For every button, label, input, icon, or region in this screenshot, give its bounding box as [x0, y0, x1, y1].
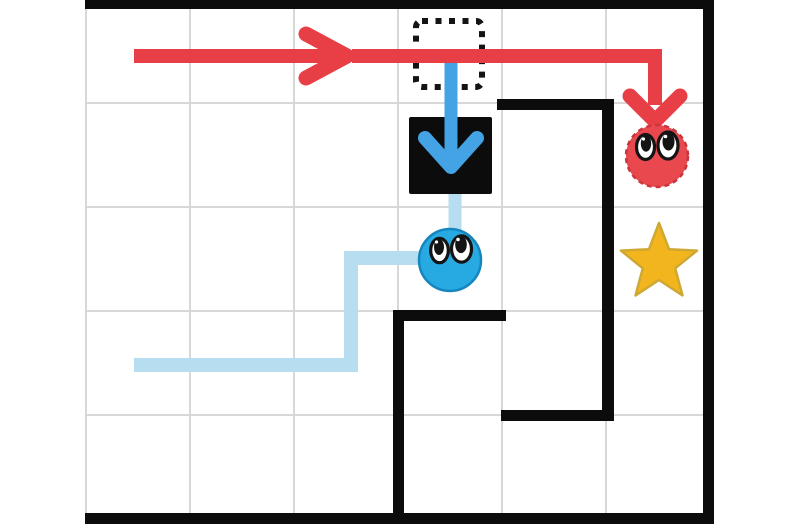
- blue-trail: [134, 258, 428, 365]
- board-overlay: [0, 0, 800, 524]
- star-icon[interactable]: [621, 223, 697, 295]
- blue-arrow: [425, 59, 477, 167]
- red-path-segment: [352, 56, 655, 105]
- blue-ball[interactable]: [419, 229, 481, 291]
- red-ball-body: [626, 125, 688, 187]
- blue-ball-body: [419, 229, 481, 291]
- red-ball[interactable]: [626, 125, 688, 187]
- game-board: [0, 0, 800, 524]
- red-path: [134, 34, 680, 121]
